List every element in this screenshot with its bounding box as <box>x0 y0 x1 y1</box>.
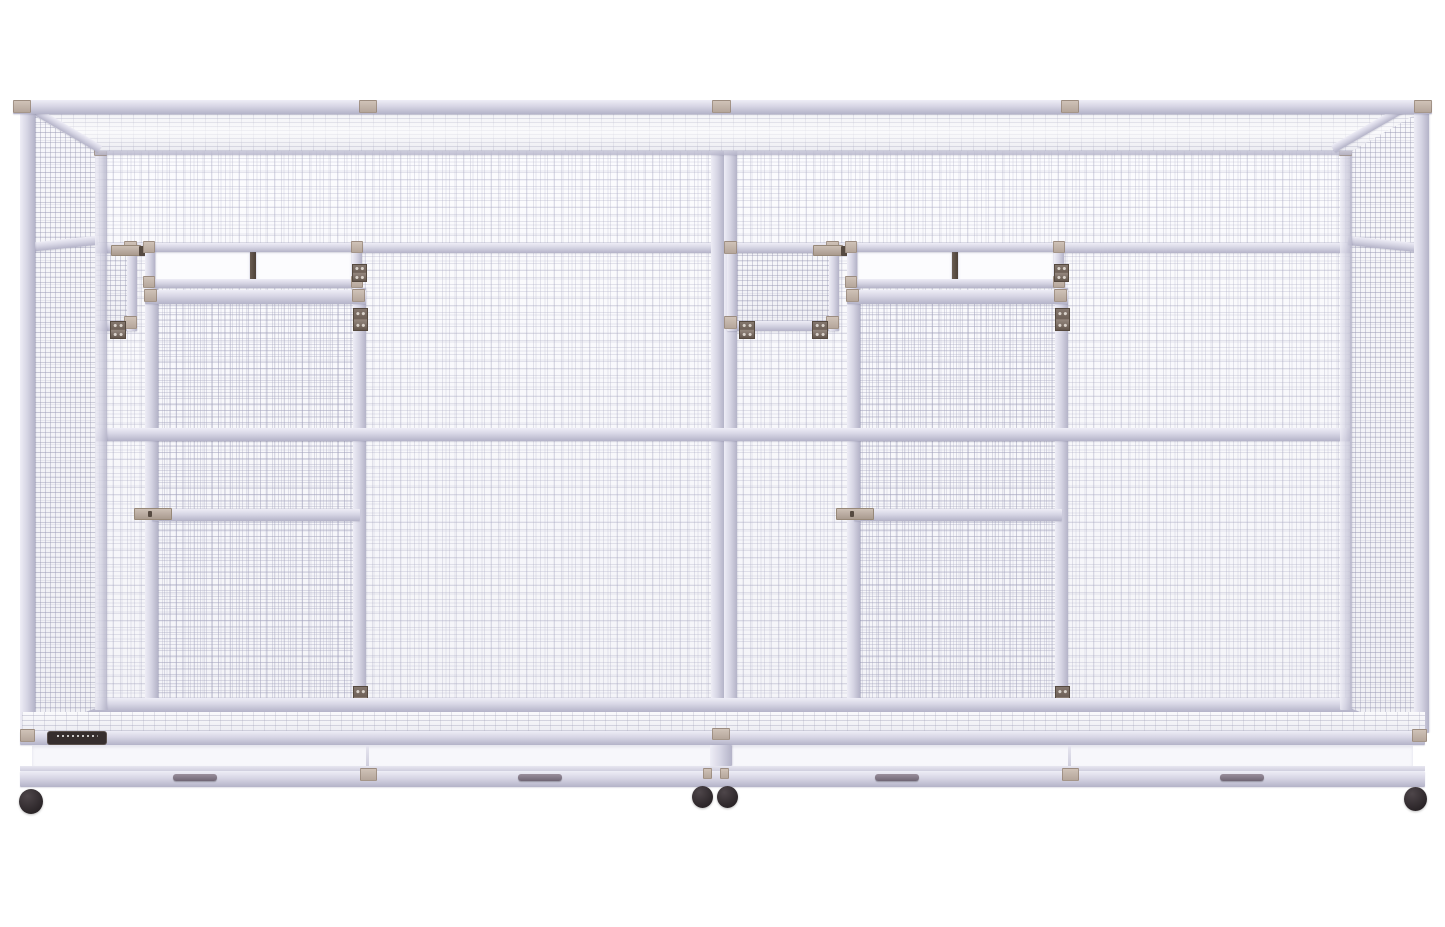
base-rail-connector <box>1062 768 1079 781</box>
aviary-product-image <box>0 0 1445 927</box>
feeder-corner-connector <box>724 316 737 329</box>
unit-corner-post-right <box>711 104 724 733</box>
feeder-door-mesh <box>732 248 834 326</box>
base-rail-connector <box>703 768 712 779</box>
front-mid-rail <box>22 428 1425 441</box>
caster-wheel <box>717 786 738 808</box>
caster-wheel <box>1404 787 1427 811</box>
nest-window-frame-top <box>145 243 362 252</box>
feeder-door-latch <box>813 245 843 256</box>
top-rail-connector <box>13 100 31 113</box>
tray-divider <box>1068 745 1071 766</box>
walk-in-door-post-right <box>1055 288 1068 712</box>
roof-mesh <box>13 113 1432 151</box>
walk-in-door-top-rail <box>145 290 366 304</box>
feeder-corner-connector <box>724 241 737 254</box>
base-foot-connector <box>20 729 35 742</box>
window-corner-connector <box>143 276 155 288</box>
nest-window-frame-bottom <box>145 279 362 288</box>
nest-window-pane-right <box>256 250 352 281</box>
unit-corner-post-left <box>724 104 737 733</box>
feeder-door-latch <box>111 245 141 256</box>
back-corner-post-left <box>95 148 107 710</box>
walk-in-door-mesh <box>860 304 1055 699</box>
door-corner-connector <box>352 289 365 302</box>
nest-window-mullion <box>952 250 958 281</box>
base-foot-connector <box>1412 729 1427 742</box>
feeder-door-hinge <box>739 321 755 339</box>
feeder-door-hinge <box>110 321 126 339</box>
window-corner-connector <box>845 276 857 288</box>
tray-center-divider <box>710 745 732 766</box>
door-hinge-top <box>1055 308 1070 331</box>
door-hinge-top <box>353 308 368 331</box>
walk-in-door-mesh <box>158 304 353 699</box>
tray-divider <box>366 745 369 766</box>
door-latch-pin <box>850 511 854 517</box>
nest-window-frame-top <box>847 243 1064 252</box>
window-corner-connector <box>845 241 857 253</box>
walk-in-door-mid-rail <box>854 509 1062 521</box>
nest-window-frame-bottom <box>847 279 1064 288</box>
feeder-door-hinge <box>812 321 828 339</box>
window-corner-connector <box>1053 241 1065 253</box>
base-foot-connector <box>712 728 730 740</box>
tray-handle <box>875 774 919 781</box>
nest-window-hinge <box>1054 264 1069 282</box>
tray-handle <box>518 774 562 781</box>
side-panel-left-mesh <box>30 113 96 733</box>
side-panel-right-mesh <box>1350 113 1414 733</box>
window-corner-connector <box>351 241 363 253</box>
top-rail-connector <box>712 100 731 113</box>
walk-in-door-latch <box>836 508 874 520</box>
back-corner-post-right <box>1340 148 1352 710</box>
nest-window-mullion <box>250 250 256 281</box>
front-corner-post-far-left <box>20 104 35 733</box>
nest-window-pane-right <box>958 250 1054 281</box>
tray-handle <box>173 774 217 781</box>
walk-in-door-post-right <box>353 288 366 712</box>
door-latch-pin <box>148 511 152 517</box>
nest-window-pane-left <box>857 250 952 281</box>
front-corner-post-far-right <box>1414 104 1429 733</box>
base-rail-connector <box>720 768 729 779</box>
brand-label <box>48 732 106 744</box>
nest-window-hinge <box>352 264 367 282</box>
front-bottom-rail <box>22 698 1425 712</box>
top-rail-connector <box>359 100 377 113</box>
top-rail-connector <box>1414 100 1432 113</box>
walk-in-door-latch <box>134 508 172 520</box>
door-corner-connector <box>846 289 859 302</box>
tray-handle <box>1220 774 1264 781</box>
caster-wheel <box>19 789 43 814</box>
walk-in-door-post-left <box>145 288 158 712</box>
walk-in-door-top-rail <box>847 290 1068 304</box>
caster-wheel <box>692 786 713 808</box>
door-corner-connector <box>1054 289 1067 302</box>
walk-in-door-post-left <box>847 288 860 712</box>
door-corner-connector <box>144 289 157 302</box>
base-rail-connector <box>360 768 377 781</box>
window-corner-connector <box>143 241 155 253</box>
nest-window-pane-left <box>155 250 250 281</box>
walk-in-door-mid-rail <box>152 509 360 521</box>
top-rail-connector <box>1061 100 1079 113</box>
